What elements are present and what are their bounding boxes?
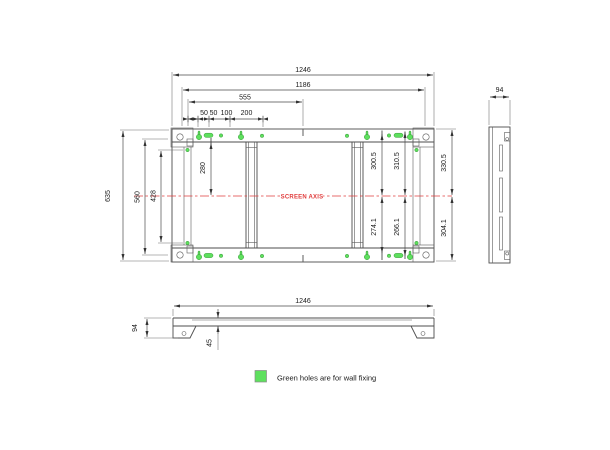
dim-spacing-200: 200: [241, 110, 253, 117]
keyhole-green: [238, 251, 243, 260]
legend-green-swatch: [255, 371, 267, 383]
dim-bottom-width: 1246: [295, 298, 311, 305]
dim-slot-span: 428: [151, 190, 158, 202]
hole-green: [415, 148, 419, 152]
keyhole-green: [196, 251, 201, 260]
dim-half-span: 555: [239, 95, 251, 102]
hole-green: [387, 134, 391, 138]
keyhole-green: [238, 131, 243, 140]
keyhole-green: [407, 131, 412, 140]
hole-green: [415, 241, 419, 245]
hole-green: [219, 134, 223, 138]
keyhole-green: [364, 251, 369, 260]
keyhole-green: [407, 251, 412, 260]
front-left-dimensions: 635 560 428 280: [105, 130, 211, 261]
hole-green: [345, 134, 349, 138]
side-depth-dimension: 94: [489, 87, 510, 125]
screen-axis-label: SCREEN AXIS: [281, 195, 324, 201]
front-view: SCREEN AXIS 1246 1186 555 50 50 100 200: [105, 67, 456, 262]
dim-bottom-inset: 45: [207, 339, 214, 347]
hole-green: [345, 254, 349, 258]
dim-rail-span: 560: [135, 191, 142, 203]
slot-green: [394, 253, 403, 257]
dim-hole-span: 1186: [295, 82, 310, 89]
bottom-feet: [173, 318, 434, 338]
dim-upper-330: 330.5: [441, 154, 448, 172]
bottom-dimensions: 1246 94 45: [132, 298, 434, 350]
front-right-dimensions: 300.5 310.5 330.5 274.1 266.1 304.1: [371, 129, 456, 261]
dim-total-width: 1246: [295, 67, 311, 74]
dim-upper-300: 300.5: [371, 152, 378, 170]
legend-note: Green holes are for wall fixing: [277, 374, 376, 383]
dim-upper-310: 310.5: [394, 152, 401, 170]
slot-green: [204, 133, 213, 137]
dim-spacing-100: 100: [221, 110, 233, 117]
keyhole-green: [364, 131, 369, 140]
legend: Green holes are for wall fixing: [255, 371, 376, 383]
dim-bottom-height: 94: [132, 324, 139, 332]
keyhole-green: [196, 131, 201, 140]
hole-green: [387, 254, 391, 257]
bottom-view: 1246 94 45: [132, 298, 434, 350]
dim-spacing-50a: 50: [200, 110, 208, 117]
dim-side-depth: 94: [496, 87, 504, 94]
dim-lower-274: 274.1: [371, 218, 378, 236]
dim-total-height: 635: [105, 190, 112, 202]
dim-axis-to-top-holes: 280: [200, 162, 207, 174]
slot-green: [204, 253, 213, 257]
hole-green: [186, 148, 190, 152]
dim-lower-304: 304.1: [441, 219, 448, 237]
dim-spacing-50b: 50: [210, 110, 218, 117]
hole-green: [186, 241, 190, 245]
hole-green: [219, 254, 223, 257]
screen-axis: SCREEN AXIS: [134, 192, 452, 201]
wall-mount-drawing: SCREEN AXIS 1246 1186 555 50 50 100 200: [0, 0, 610, 450]
technical-drawing-page: SCREEN AXIS 1246 1186 555 50 50 100 200: [0, 0, 610, 450]
hole-green: [260, 254, 264, 258]
side-hooks: [505, 133, 511, 260]
side-view: 94: [489, 87, 510, 263]
slot-green: [394, 133, 403, 137]
hole-green: [260, 134, 264, 138]
dim-lower-266: 266.1: [394, 218, 401, 236]
front-top-dimensions: 1246 1186 555 50 50 100 200: [172, 67, 434, 127]
